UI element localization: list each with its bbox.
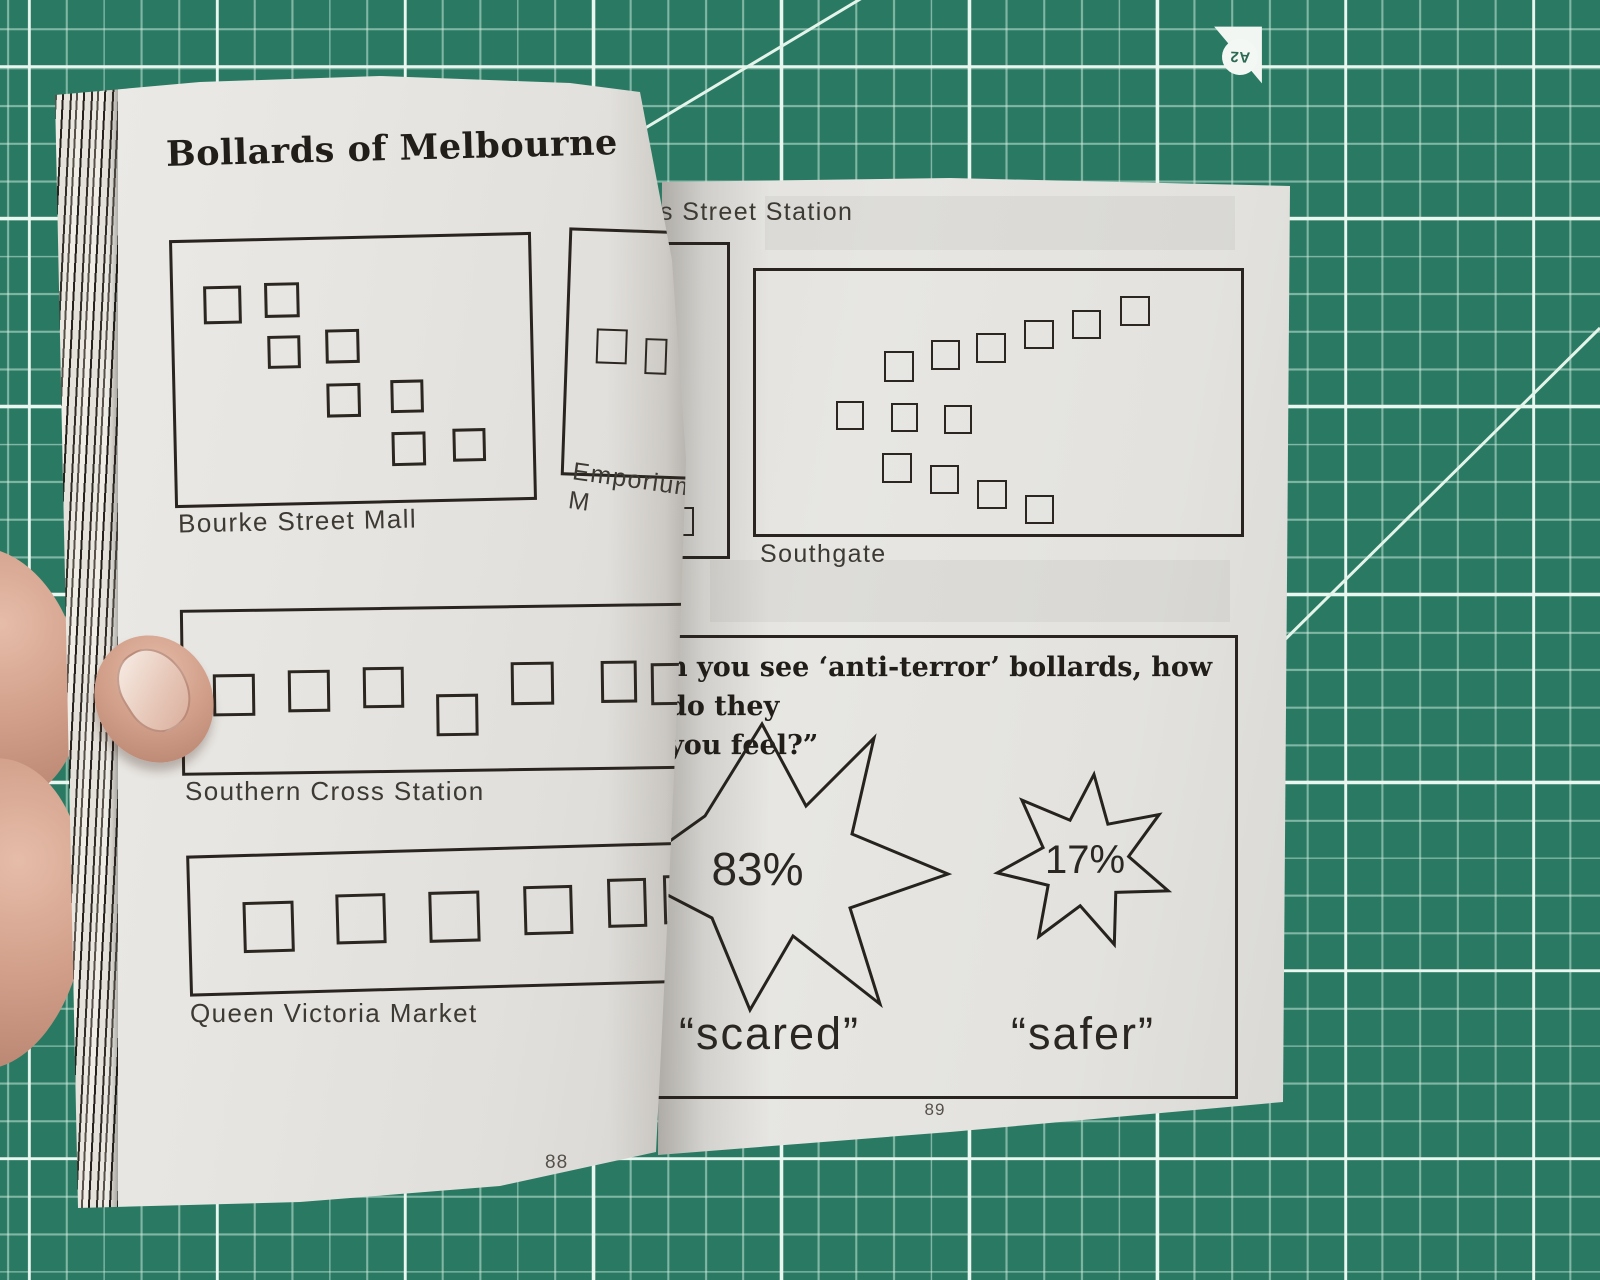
bollard-marker	[452, 428, 486, 462]
survey-question-line1: n you see ‘anti-terror’ bollards, how do…	[668, 648, 1220, 726]
diagram-queen-victoria-box	[186, 840, 736, 996]
bollard-marker	[390, 379, 424, 413]
mat-corner-marker: A2	[1203, 20, 1265, 86]
bollard-marker	[213, 674, 256, 717]
bollard-marker	[644, 338, 667, 375]
bollard-marker	[596, 328, 628, 364]
diagram-label-southern-cross: Southern Cross Station	[185, 776, 485, 807]
star-safer-label: “safer”	[988, 1008, 1178, 1060]
diagram-bourke-street-mall-box	[169, 232, 537, 508]
bollard-marker	[607, 878, 647, 928]
bollard-marker	[436, 694, 479, 737]
bollard-marker	[976, 333, 1006, 363]
bollard-marker	[264, 282, 300, 318]
bollard-marker	[944, 405, 972, 434]
star-safer-value: 17%	[1005, 838, 1165, 883]
bollard-marker	[267, 335, 301, 369]
bollard-marker	[601, 660, 638, 702]
bollard-marker	[930, 465, 959, 494]
diagram-label-bourke-street-mall: Bourke Street Mall	[178, 503, 418, 539]
bollard-marker	[836, 401, 864, 430]
book-right-page: s Street Station Southgate n you see ‘an…	[650, 170, 1300, 1165]
corner-label: A2	[1229, 48, 1250, 66]
bollard-marker	[391, 431, 426, 466]
bollard-marker	[1072, 310, 1101, 339]
bollard-marker	[335, 893, 386, 944]
bollard-marker	[1025, 495, 1054, 524]
bollard-marker	[326, 383, 361, 418]
star-scared-label: “scared”	[662, 1008, 877, 1060]
bollard-marker	[242, 901, 294, 953]
page-title: Bollards of Melbourne	[166, 122, 619, 175]
diagram-label-queen-victoria: Queen Victoria Market	[190, 998, 478, 1029]
diagram-southern-cross-box	[180, 602, 728, 776]
photo-scene: A2 s Street Station	[0, 0, 1600, 1280]
star-scared-value: 83%	[680, 842, 835, 896]
thumb-nail	[104, 636, 206, 744]
bollard-marker	[884, 351, 914, 382]
bollard-marker	[428, 890, 480, 942]
diagram-southgate-box	[753, 268, 1244, 537]
bollard-marker	[977, 480, 1007, 509]
bollard-marker	[288, 670, 331, 713]
diagram-label-street-station: s Street Station	[660, 198, 853, 227]
bollard-marker	[882, 453, 912, 483]
diagram-label-southgate: Southgate	[760, 540, 887, 569]
page-number-left: 88	[545, 1152, 568, 1174]
bollard-marker	[511, 662, 555, 706]
bollard-marker	[1120, 296, 1150, 326]
bollard-marker	[1024, 320, 1054, 349]
bollard-marker	[203, 286, 242, 325]
bollard-marker	[363, 667, 405, 709]
bollard-marker	[523, 885, 573, 935]
bollard-marker	[931, 340, 960, 370]
bollard-marker	[325, 329, 360, 364]
bollard-marker	[891, 403, 918, 432]
print-showthrough	[710, 560, 1230, 622]
page-number-right: 89	[905, 1100, 965, 1120]
